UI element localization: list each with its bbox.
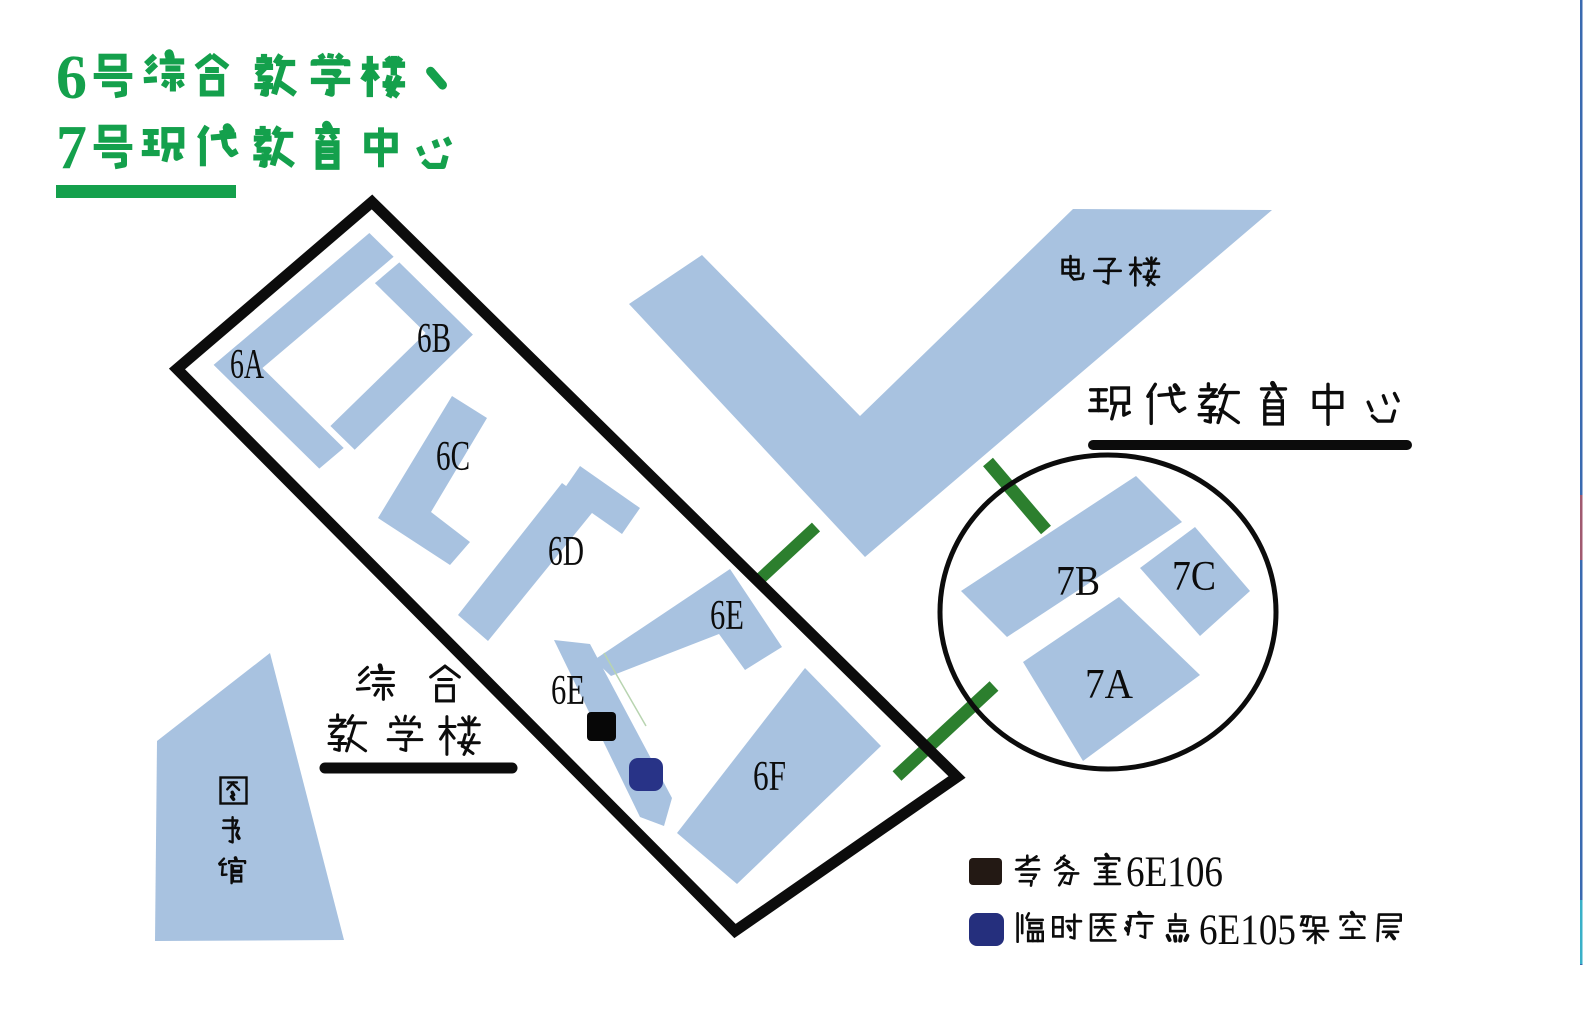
- svg-text:6A: 6A: [230, 342, 264, 388]
- svg-text:6B: 6B: [417, 316, 451, 362]
- svg-text:6E106: 6E106: [1126, 849, 1223, 896]
- svg-text:7A: 7A: [1085, 662, 1134, 708]
- svg-text:6C: 6C: [436, 434, 470, 480]
- svg-text:7: 7: [56, 114, 87, 182]
- svg-text:7C: 7C: [1172, 554, 1216, 600]
- svg-text:6E105: 6E105: [1199, 907, 1296, 954]
- svg-text:6: 6: [56, 44, 87, 112]
- svg-text:6E: 6E: [710, 593, 744, 639]
- svg-text:7B: 7B: [1056, 559, 1100, 605]
- svg-text:6E: 6E: [551, 668, 585, 714]
- svg-text:6F: 6F: [753, 754, 786, 800]
- svg-text:6D: 6D: [548, 529, 584, 575]
